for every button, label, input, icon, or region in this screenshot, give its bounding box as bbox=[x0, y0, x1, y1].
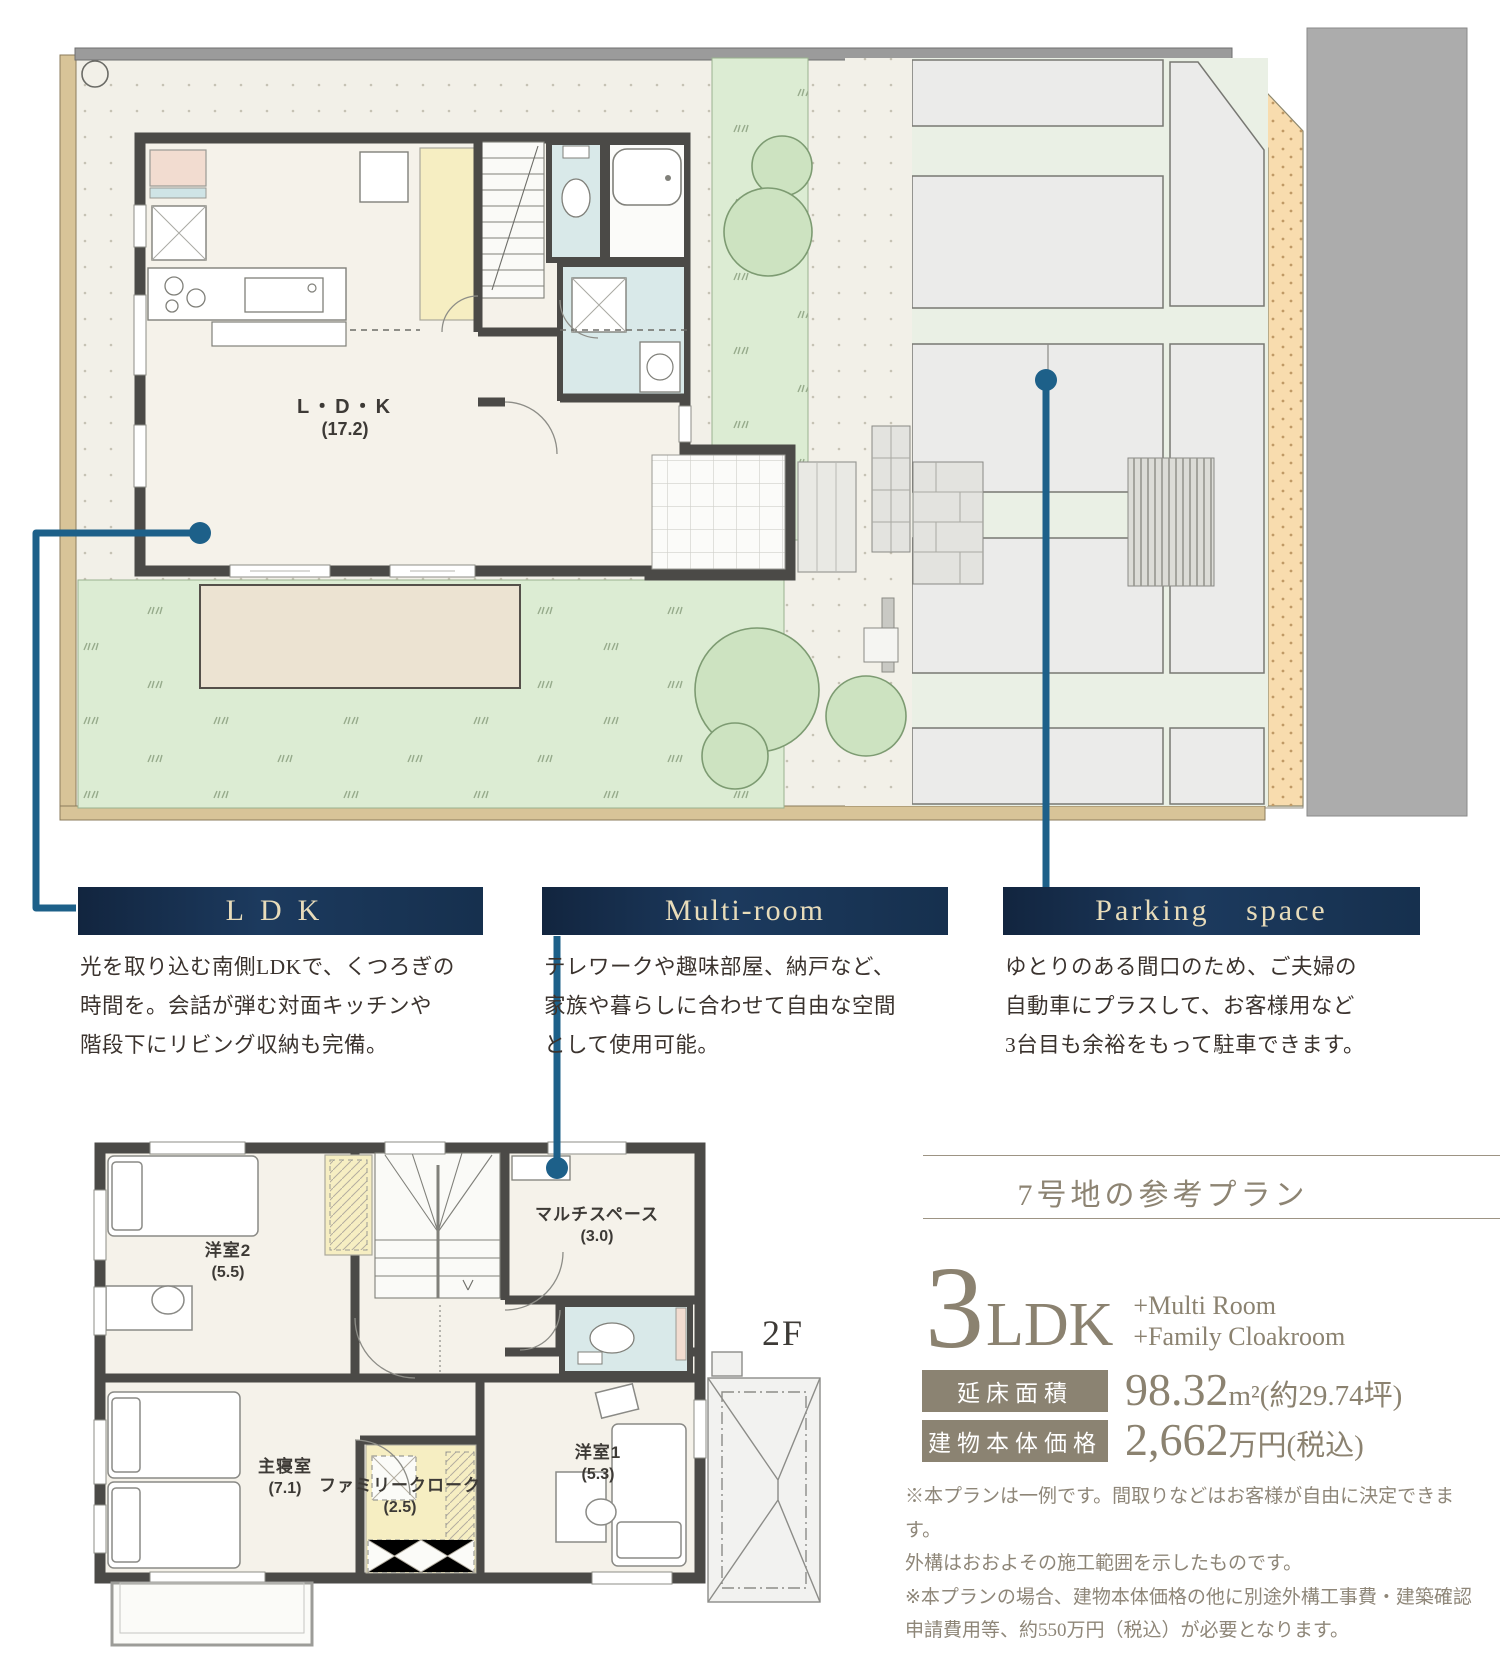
floor-label-2f: 2F bbox=[762, 1312, 804, 1354]
washroom bbox=[560, 264, 687, 398]
ldk-suffix: LDK bbox=[986, 1296, 1113, 1354]
plan-notes: ※本プランは一例です。間取りなどはお客様が自由に決定できます。 外構はおおよその… bbox=[905, 1480, 1480, 1648]
plan-title: 7号地の参考プラン bbox=[923, 1170, 1403, 1214]
tree-icon bbox=[826, 676, 906, 756]
feature-body-ldk: 光を取り込む南側LDKで、くつろぎの 時間を。会話が弾む対面キッチンや 階段下に… bbox=[80, 948, 500, 1065]
real-estate-flyer: L・D・K (17.2) 洋室2 (5.5) マルチスペース (3.0) 主寝室… bbox=[0, 0, 1500, 1680]
west-fence bbox=[60, 55, 76, 815]
panel-rule-bottom bbox=[923, 1218, 1500, 1219]
parking-connector-dot bbox=[1035, 369, 1057, 391]
room-label-ldk: L・D・K (17.2) bbox=[297, 396, 393, 440]
feature-bar-multiroom: Multi-room bbox=[542, 887, 948, 935]
feature-title-multiroom: Multi-room bbox=[665, 894, 825, 928]
toilet-1f bbox=[549, 142, 603, 260]
balcony bbox=[112, 1583, 312, 1645]
plan-extras: +Multi Room +Family Cloakroom bbox=[1133, 1290, 1345, 1352]
lawn bbox=[78, 580, 906, 808]
tree-icon bbox=[724, 188, 812, 276]
area-badge: 延床面積 bbox=[922, 1370, 1108, 1412]
feature-title-ldk: LDK bbox=[226, 894, 336, 928]
area-value: 98.32m²(約29.74坪) bbox=[1125, 1363, 1402, 1416]
road bbox=[1307, 28, 1467, 816]
ldk-connector-dot bbox=[189, 522, 211, 544]
feature-bar-ldk: LDK bbox=[78, 887, 483, 935]
stairs-1f bbox=[482, 142, 544, 298]
price-value: 2,662万円(税込) bbox=[1125, 1413, 1364, 1466]
bathroom bbox=[607, 142, 687, 260]
multiroom-connector-dot bbox=[546, 1157, 568, 1179]
panel-rule-top bbox=[923, 1155, 1500, 1156]
feature-body-multiroom: テレワークや趣味部屋、納戸など、 家族や暮らしに合わせて自由な空間 として使用可… bbox=[544, 948, 964, 1065]
room-label-master-bedroom: 主寝室 (7.1) bbox=[258, 1456, 312, 1500]
cabinet bbox=[360, 152, 408, 202]
room-label-family-cloakroom: ファミリークローク (2.5) bbox=[319, 1475, 481, 1519]
room-label-multi-space: マルチスペース (3.0) bbox=[535, 1204, 659, 1248]
entrance bbox=[652, 455, 856, 572]
site-plan bbox=[60, 28, 1467, 820]
room-label-yoshitsu2: 洋室2 (5.5) bbox=[205, 1240, 251, 1284]
feature-bar-parking: Parking space bbox=[1003, 887, 1420, 935]
feature-body-parking: ゆとりのある間口のため、ご夫婦の 自動車にプラスして、お客様用など 3台目も余裕… bbox=[1005, 948, 1445, 1065]
ldk-count: 3 bbox=[925, 1262, 984, 1354]
feature-title-parking: Parking space bbox=[1095, 894, 1327, 928]
floor-plan-2f bbox=[94, 1142, 820, 1645]
price-badge: 建物本体価格 bbox=[922, 1420, 1108, 1462]
plan-type: 3 LDK +Multi Room +Family Cloakroom bbox=[925, 1262, 1345, 1354]
stairs-2f bbox=[375, 1153, 500, 1298]
toilet-2f bbox=[562, 1304, 690, 1374]
room-label-yoshitsu1: 洋室1 (5.3) bbox=[575, 1442, 621, 1486]
terrace bbox=[200, 585, 520, 688]
closet-2f bbox=[325, 1155, 372, 1255]
tree-icon bbox=[702, 723, 768, 789]
roof-sketch bbox=[708, 1352, 820, 1602]
tree-icon bbox=[752, 136, 812, 196]
pantry-closet bbox=[420, 148, 476, 320]
